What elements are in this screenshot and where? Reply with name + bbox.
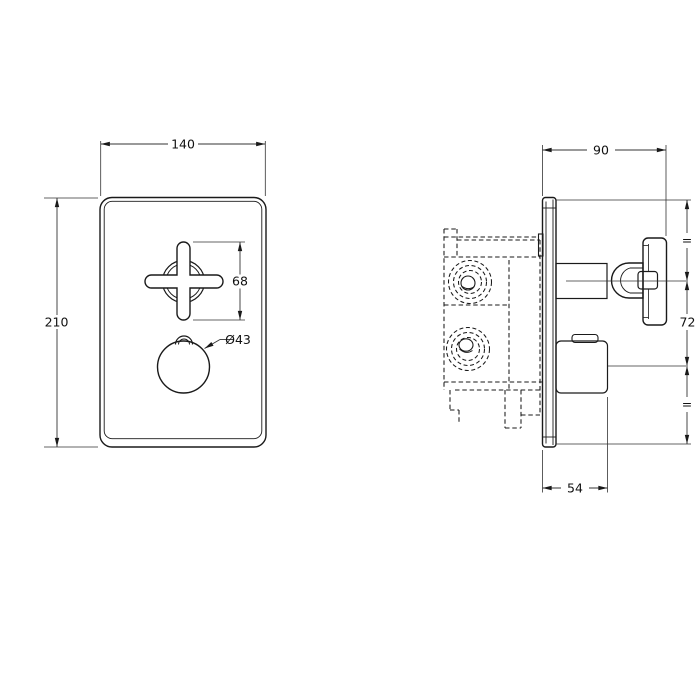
dim-label-width: 140: [171, 137, 195, 152]
background: [0, 0, 700, 700]
drawing-canvas: 140 210 68 Ø43: [0, 0, 700, 700]
dim-label-knob-depth: 54: [567, 481, 583, 496]
technical-drawing: 140 210 68 Ø43: [0, 0, 700, 700]
dim-label-handle-centers: 72: [680, 315, 696, 330]
dim-label-handle-height: 68: [232, 274, 248, 289]
dim-label-equal-top: =: [682, 233, 692, 248]
dim-label-depth: 90: [593, 143, 609, 158]
dim-label-knob-diameter: Ø43: [225, 332, 251, 347]
dim-label-equal-bottom: =: [682, 397, 692, 412]
dim-label-height: 210: [45, 315, 69, 330]
